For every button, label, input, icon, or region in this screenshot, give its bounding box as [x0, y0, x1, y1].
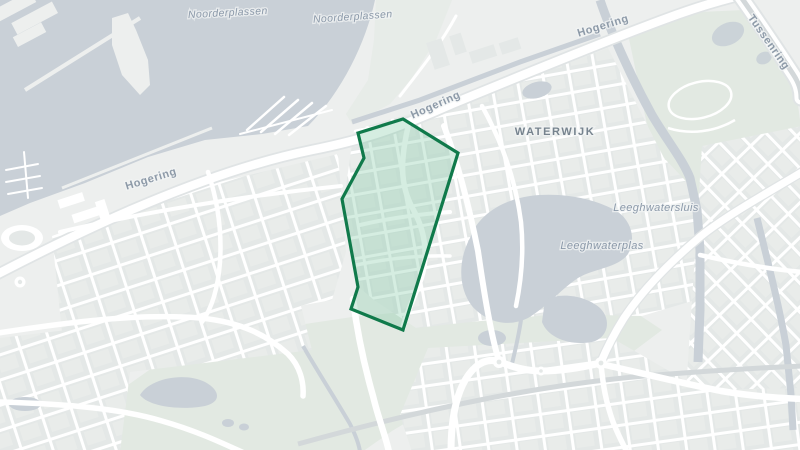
- label-waterwijk: WATERWIJK: [515, 126, 596, 138]
- label-leeghwatersluis: Leeghwatersluis: [613, 202, 699, 214]
- map-canvas[interactable]: Noorderplassen Noorderplassen Hogering H…: [0, 0, 800, 450]
- label-leeghwaterplas: Leeghwaterplas: [560, 240, 643, 252]
- stadium-oval: [1, 225, 43, 251]
- map-svg: Noorderplassen Noorderplassen Hogering H…: [0, 0, 800, 450]
